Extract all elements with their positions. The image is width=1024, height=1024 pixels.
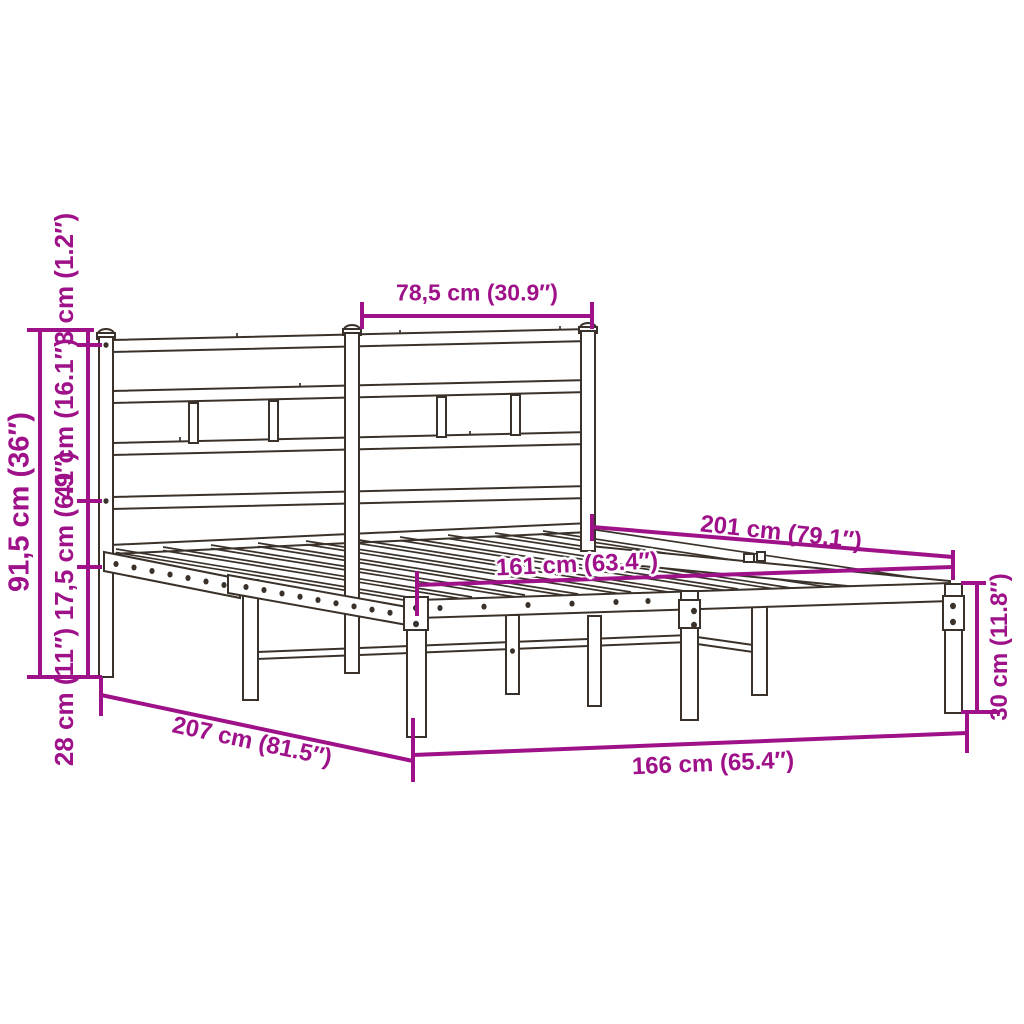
dimension-diagram: 78,5 cm (30.9″) 91,5 cm (36″) 3 cm (1.2″… <box>0 0 1024 1024</box>
headboard-total-height-label: 91,5 cm (36″) <box>6 412 35 592</box>
side-rail-depth-label: 17,5 cm (6.9″) <box>51 452 77 621</box>
dim-headboard-section-width-line <box>362 302 592 329</box>
platform-height-label: 30 cm (11.8″) <box>988 573 1012 721</box>
underbed-clearance-label: 28 cm (11″) <box>51 628 77 766</box>
finial-height-label: 3 cm (1.2″) <box>51 213 77 345</box>
bed-frame-diagram <box>0 0 1024 1024</box>
total-width-label: 166 cm (65.4″) <box>631 749 794 779</box>
headboard-section-width-label: 78,5 cm (30.9″) <box>396 282 558 305</box>
